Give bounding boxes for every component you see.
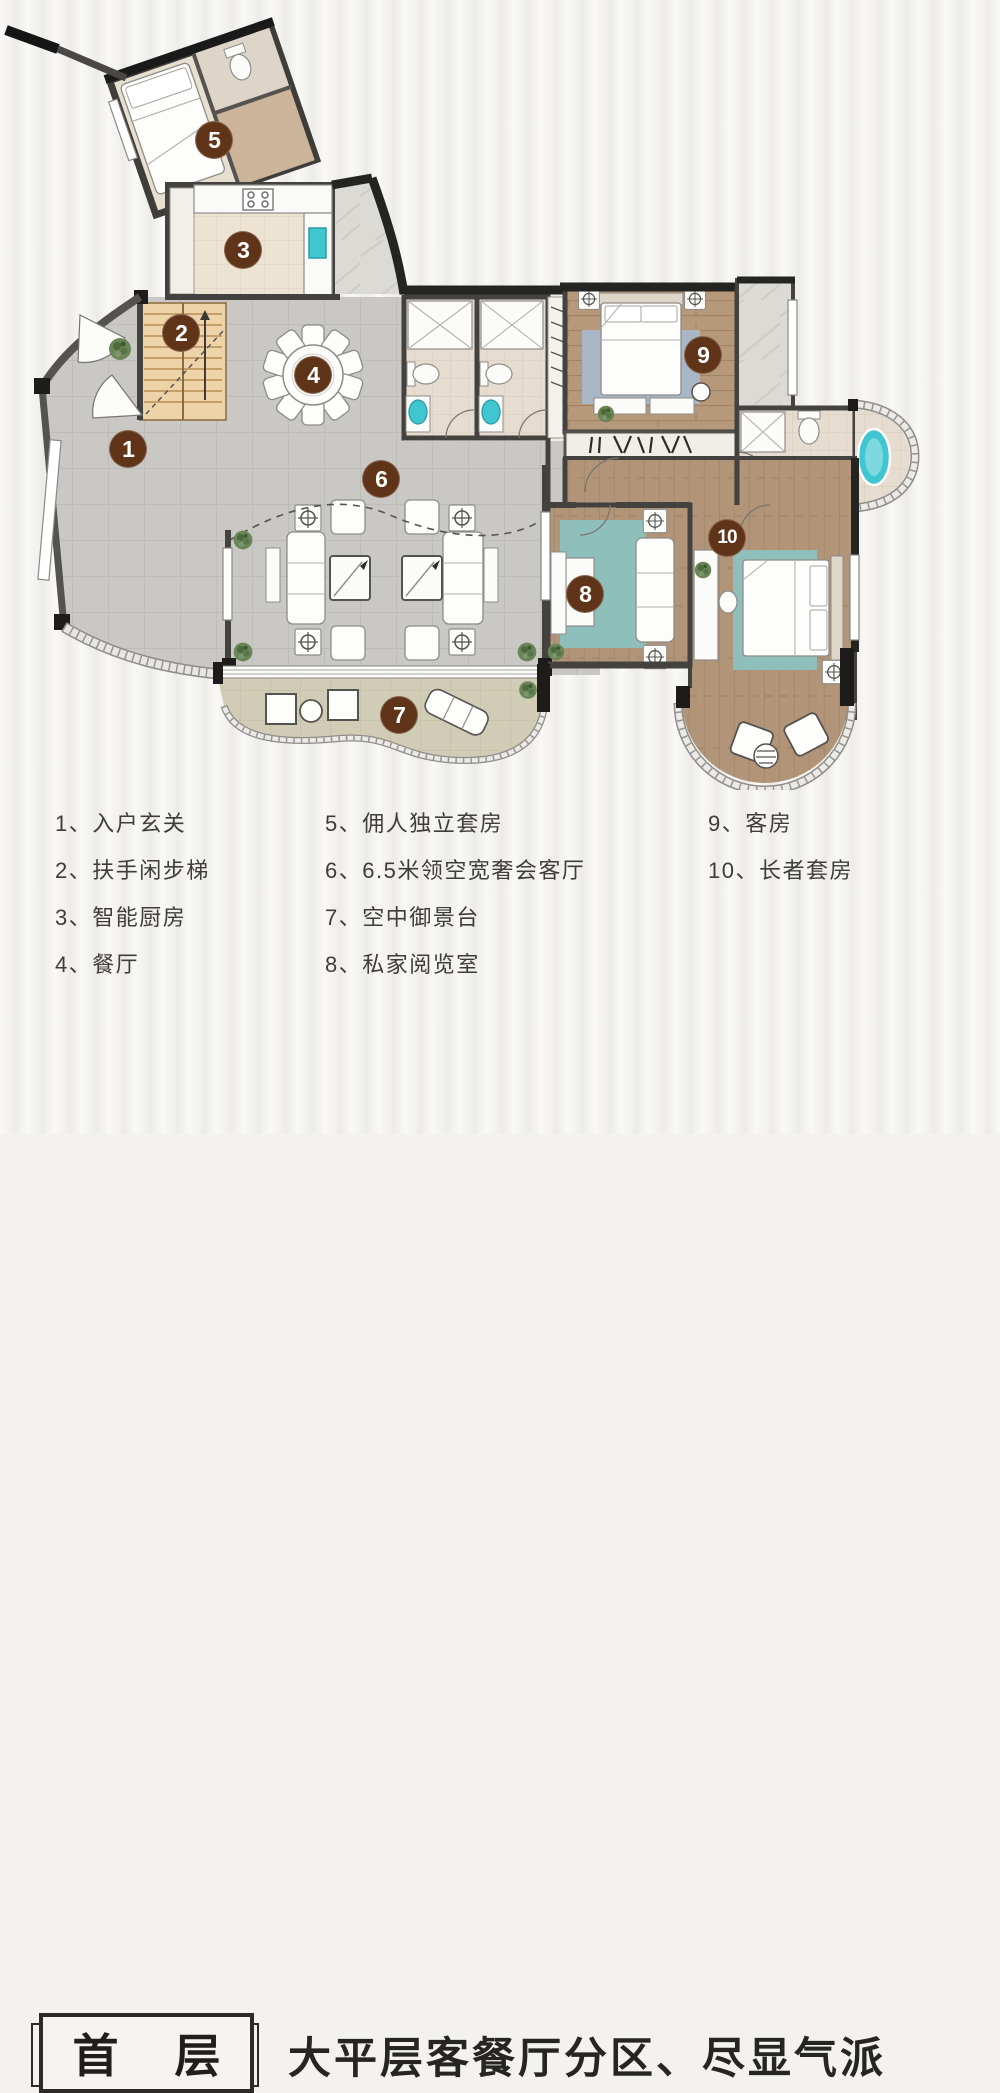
legend: 1、入户玄关 2、扶手闲步梯 3、智能厨房 4、餐厅 5、佣人独立套房 6、6.… (0, 806, 1000, 996)
sofa (443, 532, 483, 624)
room-badge-9: 9 (684, 336, 722, 374)
sofa (287, 532, 325, 624)
floor-plan-page: 1 2 3 4 5 6 7 8 9 10 1、入户玄关 2、扶手闲步梯 3、智能… (0, 0, 1000, 1134)
window (850, 555, 859, 640)
room-badge-4: 4 (294, 356, 332, 394)
window (223, 548, 232, 620)
room-badge-3: 3 (224, 231, 262, 269)
window (788, 300, 797, 395)
legend-item-7: 7、空中御景台 (325, 900, 585, 924)
room-badge-8: 8 (566, 575, 604, 613)
kitchen-sink (309, 228, 326, 258)
room-badge-6: 6 (362, 460, 400, 498)
room-badge-5: 5 (195, 121, 233, 159)
legend-item-2: 2、扶手闲步梯 (55, 853, 210, 877)
room-badge-10: 10 (708, 519, 746, 557)
floor-label-char: 首 (73, 2020, 119, 2086)
floor-plan-svg (0, 0, 1000, 790)
legend-item-6: 6、6.5米领空宽奢会客厅 (325, 853, 585, 877)
toilet (799, 418, 819, 444)
legend-item-5: 5、佣人独立套房 (325, 806, 585, 830)
floor-label-char: 层 (175, 2020, 221, 2086)
legend-column-2: 5、佣人独立套房 6、6.5米领空宽奢会客厅 7、空中御景台 8、私家阅览室 (325, 806, 585, 994)
legend-column-1: 1、入户玄关 2、扶手闲步梯 3、智能厨房 4、餐厅 (55, 806, 210, 994)
marble-balcony (737, 280, 793, 408)
armchair (331, 500, 365, 534)
bathrooms (404, 290, 548, 438)
window-band (215, 666, 548, 678)
floor-label-box: 首 层 (39, 2013, 254, 2093)
room-badge-1: 1 (109, 430, 147, 468)
sofa (636, 538, 674, 642)
footer: 首 层 大平层客餐厅分区、尽显气派 (0, 1000, 1000, 1134)
floor-plan-drawing: 1 2 3 4 5 6 7 8 9 10 (0, 0, 1000, 790)
legend-item-8: 8、私家阅览室 (325, 947, 585, 971)
legend-column-3: 9、客房 10、长者套房 (708, 806, 853, 900)
armchair (405, 626, 439, 660)
room-badge-2: 2 (162, 314, 200, 352)
window (541, 512, 550, 600)
legend-item-3: 3、智能厨房 (55, 900, 210, 924)
caption-title: 大平层客餐厅分区、尽显气派 (288, 2024, 886, 2086)
stove (243, 189, 273, 210)
toilet (486, 364, 512, 384)
room-badge-7: 7 (380, 696, 418, 734)
sink (482, 400, 500, 424)
legend-item-1: 1、入户玄关 (55, 806, 210, 830)
legend-item-10: 10、长者套房 (708, 853, 853, 877)
sink (409, 400, 427, 424)
toilet (413, 364, 439, 384)
legend-item-9: 9、客房 (708, 806, 853, 830)
armchair (331, 626, 365, 660)
legend-item-4: 4、餐厅 (55, 947, 210, 971)
